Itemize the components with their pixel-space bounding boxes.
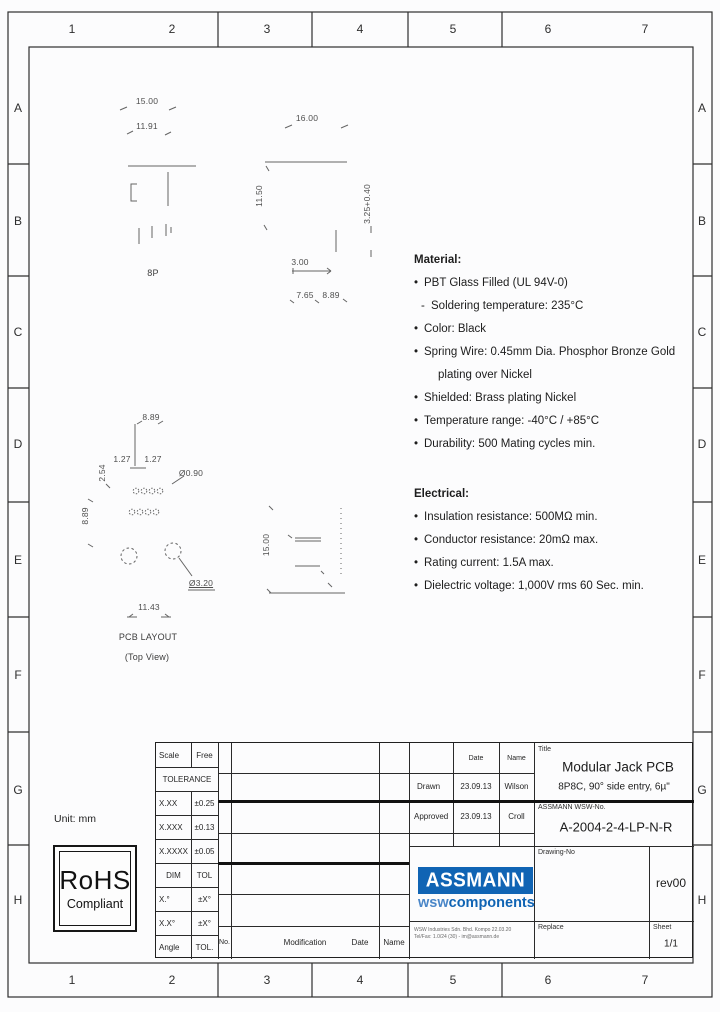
- angle-dim: X.X°: [156, 911, 191, 935]
- grid-row-label: C: [698, 325, 707, 339]
- spec-line: plating over Nickel: [428, 363, 694, 386]
- spec-line: •Rating current: 1.5A max.: [414, 551, 694, 574]
- tol-dim: X.XXX: [156, 815, 191, 839]
- electrical-section: Electrical: •Insulation resistance: 500M…: [414, 482, 694, 597]
- bullet: •: [414, 277, 424, 289]
- pcb-layout-title: PCB LAYOUT: [119, 632, 177, 642]
- grid-col-label: 6: [545, 973, 552, 987]
- document-title: Modular Jack PCB: [562, 760, 674, 775]
- dim-pcb-pitch1: 1.27: [113, 454, 130, 464]
- rohs-text: RoHS: [59, 867, 130, 893]
- sheet-value: 1/1: [664, 939, 678, 950]
- dim-height: 11.50: [254, 185, 264, 207]
- assmann-logo-text: ASSMANN: [426, 869, 526, 893]
- wsw-text: wsw: [418, 895, 449, 911]
- bullet: •: [414, 323, 424, 335]
- grid-col-label: 7: [642, 973, 649, 987]
- material-section: Material: •PBT Glass Filled (UL 94V-0) -…: [414, 248, 694, 455]
- address-line: WSW Industries Sdn. Bhd. Kompo 22.03.20: [414, 927, 534, 934]
- grid-row-label: B: [698, 214, 706, 228]
- grid-col-label: 1: [69, 973, 76, 987]
- spec-text: Rating current: 1.5A max.: [424, 557, 554, 569]
- dim-pcb-left: 8.89: [80, 507, 90, 524]
- grid-col-label: 2: [169, 973, 176, 987]
- dim-pcb-row: 2.54: [97, 464, 107, 481]
- part-number: A-2004-2-4-LP-N-R: [560, 820, 673, 835]
- spec-text: Shielded: Brass plating Nickel: [424, 392, 576, 404]
- spec-text: Spring Wire: 0.45mm Dia. Phosphor Bronze…: [424, 346, 675, 358]
- dia-pad-hole: Ø0.90: [179, 468, 203, 478]
- grid-row-label: H: [698, 893, 707, 907]
- wsw-no-label: ASSMANN WSW-No.: [538, 804, 606, 811]
- document-subtitle: 8P8C, 90° side entry, 6µ": [558, 782, 670, 793]
- scale-label: Scale: [156, 743, 191, 767]
- grid-row-label: A: [698, 101, 706, 115]
- spec-text: PBT Glass Filled (UL 94V-0): [424, 277, 568, 289]
- dim-pcb-span: 11.43: [138, 602, 160, 612]
- tol-value: ±0.25: [191, 791, 218, 815]
- bullet: •: [414, 511, 424, 523]
- wsw-components-logo-text: wswcomponents: [418, 895, 533, 911]
- angle-dim: X.°: [156, 887, 191, 911]
- dim-front-width: 15.00: [136, 96, 158, 106]
- rohs-inner-frame: RoHS Compliant: [59, 851, 131, 926]
- spec-text: Color: Black: [424, 323, 486, 335]
- scale-value: Free: [191, 743, 218, 767]
- grid-row-label: F: [698, 668, 705, 682]
- rohs-badge: RoHS Compliant: [53, 845, 137, 932]
- dim-pcb-pitch2: 1.27: [144, 454, 161, 464]
- grid-row-label: H: [14, 893, 23, 907]
- grid-row-label: E: [698, 553, 706, 567]
- dia-mounting-hole: Ø3.20: [189, 578, 213, 588]
- components-text: components: [449, 895, 535, 911]
- rev-name-header: Name: [379, 926, 409, 959]
- approval-name-header: Name: [499, 743, 534, 773]
- rev-date-header: Date: [341, 926, 379, 959]
- spec-text: Dielectric voltage: 1,000V rms 60 Sec. m…: [424, 580, 644, 592]
- spec-line: •Spring Wire: 0.45mm Dia. Phosphor Bronz…: [414, 340, 694, 363]
- angle-label: Angle: [156, 935, 191, 959]
- angle-tol-label: TOL.: [191, 935, 218, 959]
- spec-line: •Color: Black: [414, 317, 694, 340]
- spec-text: Durability: 500 Mating cycles min.: [424, 438, 595, 450]
- dim-length: 16.00: [296, 113, 318, 123]
- approved-name: Croll: [499, 800, 534, 833]
- bullet: •: [414, 557, 424, 569]
- grid-col-label: 3: [264, 22, 271, 36]
- material-heading: Material:: [414, 248, 694, 271]
- tol-value: ±0.05: [191, 839, 218, 863]
- drawing-sheet: 1 2 3 4 5 6 7 1 2 3 4 5 6 7 A B C D E F …: [0, 0, 720, 1012]
- bullet: •: [414, 438, 424, 450]
- pcb-layout-subtitle: (Top View): [125, 652, 169, 662]
- unit-label: Unit: mm: [54, 813, 96, 825]
- spec-line: •Temperature range: -40°C / +85°C: [414, 409, 694, 432]
- drawn-name: Wilson: [499, 773, 534, 800]
- electrical-heading: Electrical:: [414, 482, 694, 505]
- dim-a: 7.65: [296, 290, 313, 300]
- bullet: •: [414, 580, 424, 592]
- spec-line: •PBT Glass Filled (UL 94V-0): [414, 271, 694, 294]
- grid-col-label: 5: [450, 973, 457, 987]
- grid-col-label: 5: [450, 22, 457, 36]
- dim-front-opening: 11.91: [136, 121, 158, 131]
- spec-text: Insulation resistance: 500MΩ min.: [424, 511, 598, 523]
- spec-text: Conductor resistance: 20mΩ max.: [424, 534, 598, 546]
- grid-row-label: D: [14, 437, 23, 451]
- dash: -: [421, 300, 431, 312]
- grid-col-label: 1: [69, 22, 76, 36]
- grid-col-label: 3: [264, 973, 271, 987]
- assmann-logo: ASSMANN: [418, 867, 533, 894]
- grid-row-label: E: [14, 553, 22, 567]
- grid-row-label: G: [13, 783, 22, 797]
- tol-dim: X.XX: [156, 791, 191, 815]
- replace-label: Replace: [538, 924, 564, 931]
- spec-line: •Shielded: Brass plating Nickel: [414, 386, 694, 409]
- spec-line: •Dielectric voltage: 1,000V rms 60 Sec. …: [414, 574, 694, 597]
- front-view-label: 8P: [147, 268, 158, 278]
- spec-text: plating over Nickel: [438, 369, 532, 381]
- spec-line: •Insulation resistance: 500MΩ min.: [414, 505, 694, 528]
- grid-row-label: C: [14, 325, 23, 339]
- tolerance-label: TOLERANCE: [156, 767, 218, 791]
- revision-value: rev00: [656, 876, 686, 890]
- angle-tol: ±X°: [191, 911, 218, 935]
- bullet: •: [414, 346, 424, 358]
- title-block: Scale Free TOLERANCE X.XX ±0.25 X.XXX ±0…: [155, 742, 693, 958]
- bullet: •: [414, 415, 424, 427]
- grid-col-label: 4: [357, 22, 364, 36]
- spec-text: Temperature range: -40°C / +85°C: [424, 415, 599, 427]
- grid-row-label: G: [697, 783, 706, 797]
- spec-text: Soldering temperature: 235°C: [431, 300, 583, 312]
- rev-no-header: No.: [218, 926, 231, 959]
- tol-value: ±0.13: [191, 815, 218, 839]
- grid-row-label: F: [14, 668, 21, 682]
- dim-pcb-top: 8.89: [142, 412, 159, 422]
- angle-tol: ±X°: [191, 887, 218, 911]
- grid-row-label: A: [14, 101, 22, 115]
- approval-date-header: Date: [453, 743, 499, 773]
- grid-col-label: 6: [545, 22, 552, 36]
- spec-line: •Durability: 500 Mating cycles min.: [414, 432, 694, 455]
- rohs-compliant-text: Compliant: [67, 897, 123, 911]
- dim-header: DIM: [156, 863, 191, 887]
- grid-col-label: 2: [169, 22, 176, 36]
- dim-pitch: 3.00: [291, 257, 308, 267]
- drawn-date: 23.09.13: [453, 773, 499, 800]
- manufacturer-address: WSW Industries Sdn. Bhd. Kompo 22.03.20 …: [414, 927, 534, 941]
- approved-date: 23.09.13: [453, 800, 499, 833]
- address-line: Tel/Fax: 1.0/24 (30) - im@assmann.de: [414, 934, 534, 941]
- tol-dim: X.XXXX: [156, 839, 191, 863]
- grid-col-label: 7: [642, 22, 649, 36]
- drawing-no-label: Drawing-No: [538, 849, 575, 856]
- dim-side-height: 15.00: [261, 534, 271, 556]
- approved-label: Approved: [409, 800, 453, 833]
- drawn-label: Drawn: [409, 773, 453, 800]
- sheet-label: Sheet: [653, 924, 671, 931]
- bullet: •: [414, 534, 424, 546]
- grid-col-label: 4: [357, 973, 364, 987]
- dim-b: 8.89: [322, 290, 339, 300]
- tol-header: TOL: [191, 863, 218, 887]
- spec-line: -Soldering temperature: 235°C: [421, 294, 694, 317]
- dim-pin: 3.25+0.40: [362, 184, 372, 224]
- bullet: •: [414, 392, 424, 404]
- spec-line: •Conductor resistance: 20mΩ max.: [414, 528, 694, 551]
- grid-row-label: D: [698, 437, 707, 451]
- grid-row-label: B: [14, 214, 22, 228]
- title-label: Title: [538, 746, 551, 753]
